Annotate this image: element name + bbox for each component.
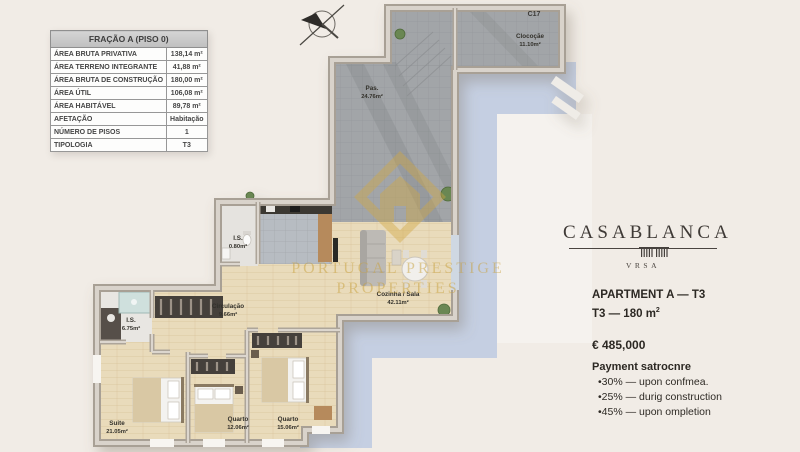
room-label: Suite [109,420,125,427]
room-label: Quarto [228,416,249,423]
tv-icon [333,238,338,262]
page: C17 Clocoçãe 11.10m² Pas. 24.76m² I.S. 0… [0,0,800,452]
shower-icon [119,292,150,313]
room-label: I.S. [126,317,136,324]
svg-text:42.11m²: 42.11m² [387,299,408,306]
listing-block: APARTMENT A — T3 T3 — 180 m2 € 485,000 P… [592,287,792,420]
info-table: FRAÇÃO A (PISO 0) ÁREA BRUTA PRIVATIVA13… [50,30,208,152]
room-label: Quarto [278,416,299,423]
nightstand-icon [235,386,243,394]
room-label: I.S. [233,235,243,242]
brand-sub: VRSA [563,261,723,270]
svg-text:11.10m²: 11.10m² [519,41,540,48]
svg-text:9.66m²: 9.66m² [219,311,237,318]
apartment-title: APARTMENT A — T3 [592,287,792,303]
apartment-size: T3 — 180 m2 [592,303,792,322]
table-row: ÁREA TERRENO INTEGRANTE41,88 m² [51,61,208,74]
svg-text:15.06m²: 15.06m² [277,424,299,431]
table-row: ÁREA HABITÁVEL89,78 m² [51,100,208,113]
payment-item: •30% — upon confmea. [598,375,792,390]
brand-divider [569,248,717,261]
payment-title: Payment satrocnre [592,361,792,373]
dresser-icon [314,406,332,420]
svg-text:21.05m²: 21.05m² [106,428,128,435]
payment-item: •45% — upon ompletion [598,405,792,420]
room-label: Circulação [212,303,244,310]
table-row: TIPOLOGIAT3 [51,139,208,152]
brand-name: CASABLANCA [563,222,723,244]
table-row: ÁREA BRUTA PRIVATIVA138,14 m² [51,48,208,61]
payment-item: •25% — durig construction [598,390,792,405]
table-row: AFETAÇÃOHabitação [51,113,208,126]
compass-icon [300,5,344,45]
watermark-line2: PROPERTIES [336,280,459,297]
watermark-line1: PORTUGAL PRESTIGE [291,260,504,277]
table-row: ÁREA BRUTA DE CONSTRUÇÃO180,00 m² [51,74,208,87]
table-row: NÚMERO DE PISOS1 [51,126,208,139]
svg-text:6.75m²: 6.75m² [122,325,140,332]
payment-list: •30% — upon confmea. •25% — durig constr… [598,375,792,420]
price: € 485,000 [592,338,792,352]
nightstand-icon [251,350,259,358]
svg-text:24.76m²: 24.76m² [361,93,383,100]
brand-block: CASABLANCA VRSA [563,222,723,270]
svg-text:0.80m²: 0.80m² [229,243,247,250]
svg-text:12.06m²: 12.06m² [227,424,249,431]
info-table-header: FRAÇÃO A (PISO 0) [51,31,208,48]
room-label: Clocoçãe [516,33,544,40]
unit-code-label: C17 [528,11,541,18]
table-row: ÁREA ÚTIL106,08 m² [51,87,208,100]
room-label: Pas. [366,85,379,92]
